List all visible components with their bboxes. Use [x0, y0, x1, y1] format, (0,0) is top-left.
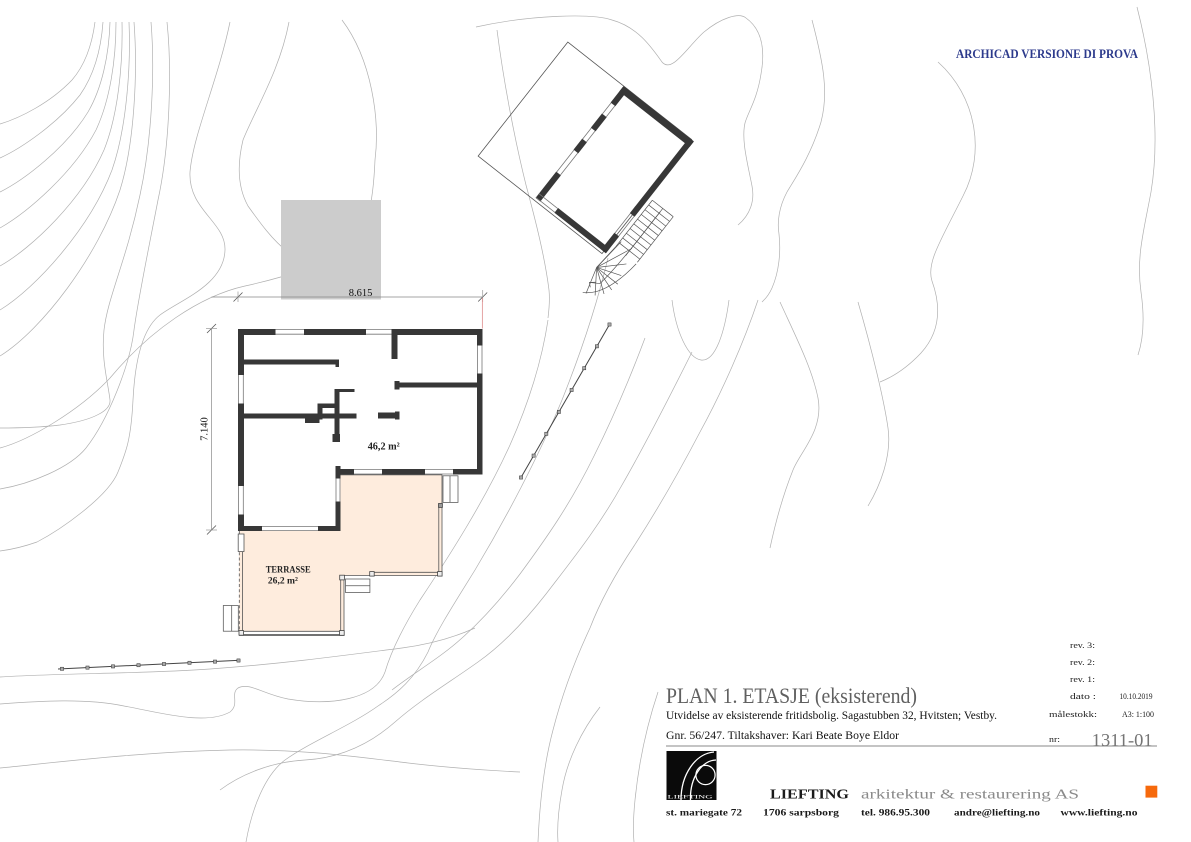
svg-text:Utvidelse av eksisterende frit: Utvidelse av eksisterende fritidsbolig. … [666, 710, 997, 722]
svg-text:26,2 m²: 26,2 m² [268, 577, 298, 587]
svg-text:arkitektur & restaurering AS: arkitektur & restaurering AS [861, 787, 1079, 802]
svg-text:rev. 3:: rev. 3: [1070, 641, 1095, 650]
svg-text:1311-01: 1311-01 [1092, 730, 1153, 750]
svg-text:46,2 m²: 46,2 m² [368, 442, 400, 453]
svg-text:målestokk:: målestokk: [1049, 709, 1097, 719]
svg-text:Gnr. 56/247. Tiltakshaver:: Gnr. 56/247. Tiltakshaver: Kari Beate Bo… [666, 728, 899, 742]
svg-text:A3: 1:100: A3: 1:100 [1122, 709, 1154, 719]
svg-text:LIEFTING: LIEFTING [668, 795, 713, 801]
svg-text:10.10.2019: 10.10.2019 [1120, 691, 1153, 701]
svg-text:rev. 1:: rev. 1: [1070, 675, 1095, 684]
svg-text:nr:: nr: [1049, 734, 1060, 744]
svg-text:TERRASSE: TERRASSE [266, 566, 311, 576]
svg-text:LIEFTING: LIEFTING [770, 788, 849, 803]
svg-text:dato :: dato : [1070, 692, 1096, 701]
svg-text:st. mariegate 72: st. mariegate 72 [666, 808, 742, 818]
svg-text:ARCHICAD VERSIONE DI PROVA: ARCHICAD VERSIONE DI PROVA [956, 47, 1138, 61]
svg-text:rev. 2:: rev. 2: [1070, 658, 1095, 667]
svg-text:andre@liefting.no: andre@liefting.no [954, 808, 1040, 818]
svg-text:8.615: 8.615 [349, 288, 373, 299]
svg-text:www.liefting.no: www.liefting.no [1061, 808, 1138, 818]
svg-text:7.140: 7.140 [200, 417, 211, 441]
svg-text:PLAN 1. ETASJE (eksisterend): PLAN 1. ETASJE (eksisterend) [666, 683, 917, 708]
svg-text:tel. 986.95.300: tel. 986.95.300 [861, 808, 930, 818]
svg-text:1706 sarpsborg: 1706 sarpsborg [763, 808, 839, 818]
